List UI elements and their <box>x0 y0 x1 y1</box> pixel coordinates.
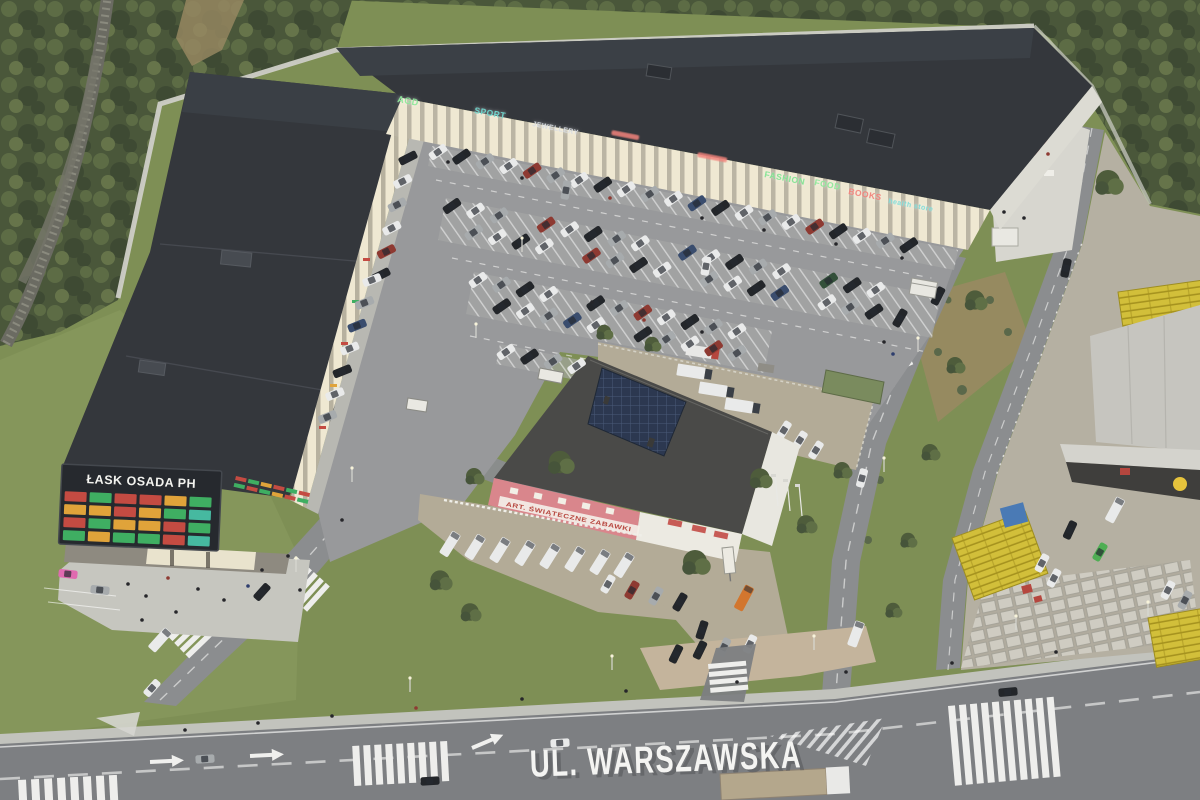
aerial-render: ART. ŚWIĄTECZNE ZABAWKI <box>0 0 1200 800</box>
car <box>420 776 439 786</box>
scene-canvas: ART. ŚWIĄTECZNE ZABAWKI <box>0 0 1200 800</box>
street-name-label: UL. WARSZAWSKA UL. WARSZAWSKA <box>529 734 806 789</box>
red-banner <box>1120 468 1130 475</box>
canopy <box>992 228 1018 246</box>
car <box>195 754 214 764</box>
pylon-sign: ŁASK OSADA PH <box>59 464 222 551</box>
roof-hatch <box>221 250 252 267</box>
store-logo <box>1173 477 1187 491</box>
car <box>998 687 1018 697</box>
